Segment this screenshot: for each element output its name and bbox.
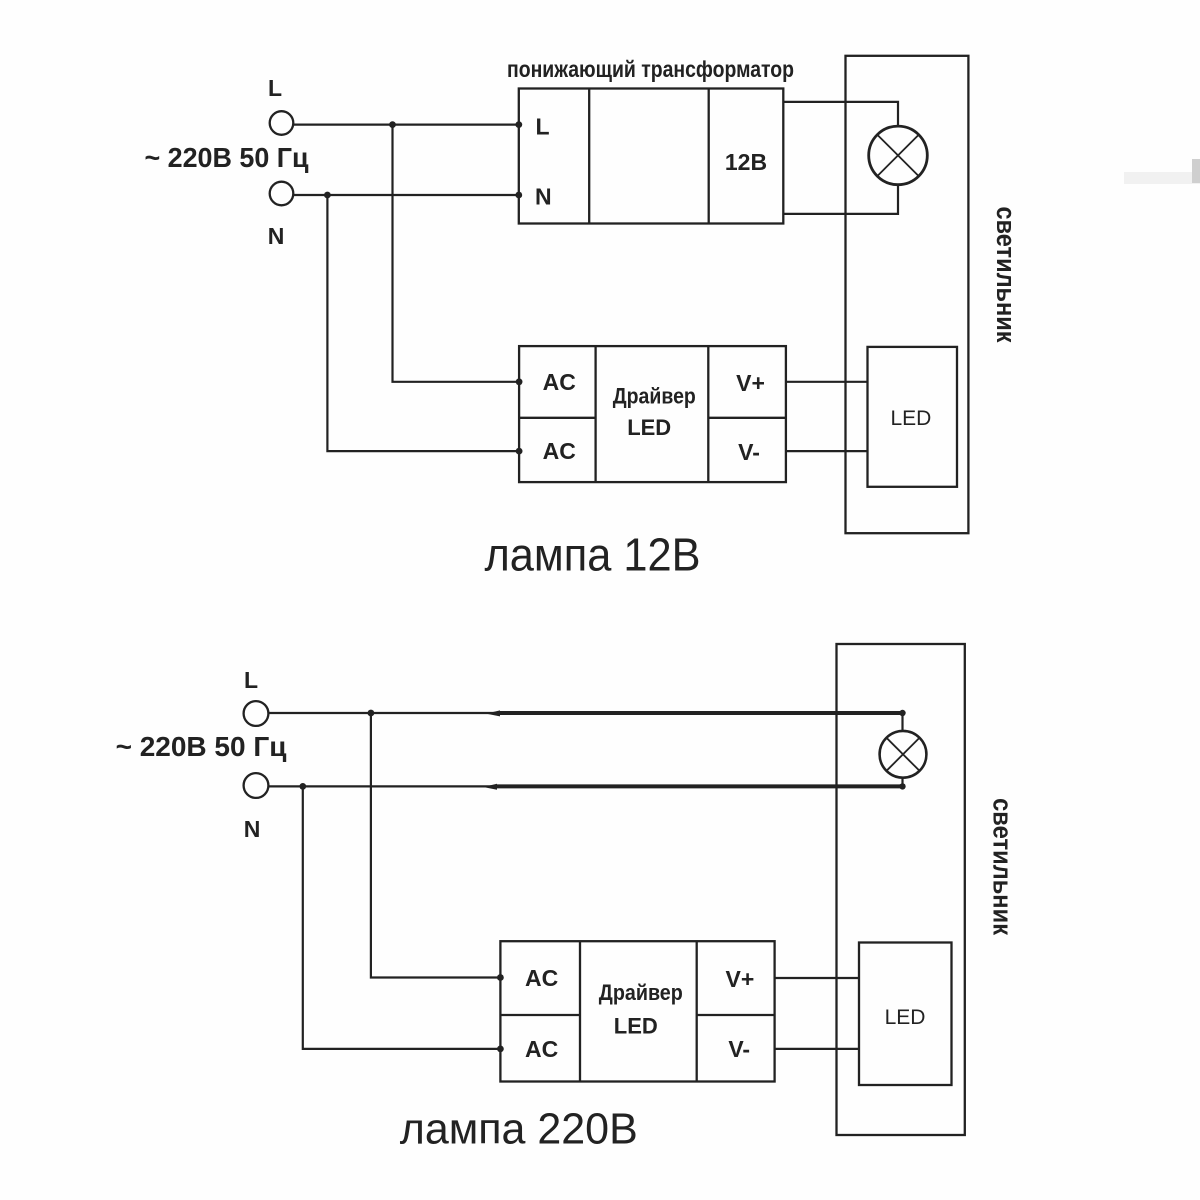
- svg-text:V+: V+: [726, 966, 755, 992]
- svg-text:V-: V-: [738, 439, 760, 465]
- svg-text:LED: LED: [614, 1014, 658, 1039]
- svg-text:L: L: [244, 667, 258, 693]
- svg-text:светильник: светильник: [991, 207, 1021, 343]
- svg-text:светильник: светильник: [988, 798, 1018, 935]
- svg-text:12В: 12В: [725, 149, 767, 175]
- svg-text:понижающий трансформатор: понижающий трансформатор: [507, 56, 794, 82]
- svg-text:~ 220В 50 Гц: ~ 220В 50 Гц: [145, 142, 309, 173]
- svg-text:L: L: [535, 114, 549, 140]
- svg-text:LED: LED: [890, 407, 931, 430]
- svg-text:лампа 220В: лампа 220В: [400, 1105, 638, 1154]
- svg-text:~ 220В 50 Гц: ~ 220В 50 Гц: [116, 731, 287, 762]
- svg-text:AC: AC: [525, 965, 558, 991]
- svg-text:LED: LED: [627, 415, 671, 440]
- svg-text:Драйвер: Драйвер: [599, 980, 683, 1005]
- svg-text:V-: V-: [728, 1036, 750, 1062]
- svg-text:Драйвер: Драйвер: [613, 384, 696, 409]
- svg-text:лампа 12В: лампа 12В: [485, 529, 701, 581]
- svg-text:V+: V+: [736, 370, 765, 396]
- svg-text:N: N: [535, 184, 552, 210]
- svg-text:L: L: [268, 75, 282, 101]
- svg-text:AC: AC: [543, 438, 576, 464]
- svg-text:AC: AC: [543, 369, 576, 395]
- svg-text:LED: LED: [885, 1006, 926, 1029]
- svg-text:N: N: [244, 816, 261, 842]
- svg-text:N: N: [268, 223, 285, 249]
- svg-text:AC: AC: [525, 1036, 558, 1062]
